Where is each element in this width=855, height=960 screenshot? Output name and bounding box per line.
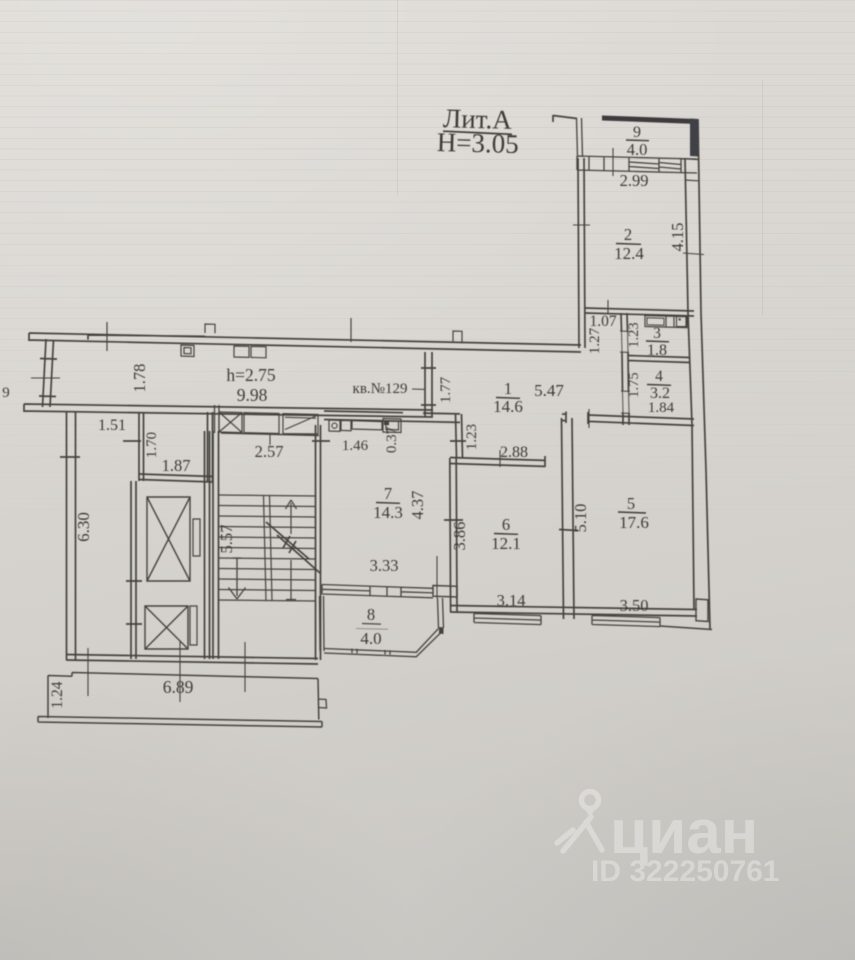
svg-text:2.99: 2.99 [620, 171, 649, 190]
svg-text:8: 8 [367, 605, 375, 624]
svg-text:4.0: 4.0 [627, 140, 648, 159]
svg-text:1.75: 1.75 [626, 372, 642, 397]
svg-text:4.0: 4.0 [360, 629, 381, 648]
svg-text:1.23: 1.23 [464, 424, 480, 450]
svg-text:4: 4 [655, 368, 663, 385]
svg-text:2.57: 2.57 [255, 442, 284, 461]
svg-text:1.84: 1.84 [648, 400, 675, 416]
svg-text:4.37: 4.37 [408, 491, 427, 520]
svg-text:7: 7 [384, 484, 392, 503]
svg-text:1.78: 1.78 [130, 364, 149, 393]
svg-text:9.98: 9.98 [237, 385, 268, 405]
svg-text:3.33: 3.33 [370, 556, 399, 575]
svg-text:1.51: 1.51 [98, 417, 126, 434]
svg-text:1: 1 [504, 379, 512, 398]
svg-text:кв.№129: кв.№129 [353, 381, 408, 397]
svg-text:3: 3 [653, 325, 661, 342]
svg-text:1.70: 1.70 [144, 432, 160, 458]
svg-text:ID 322250761: ID 322250761 [591, 855, 780, 888]
svg-text:4.15: 4.15 [668, 223, 687, 252]
svg-text:1.87: 1.87 [162, 456, 191, 475]
svg-text:9: 9 [633, 124, 641, 141]
svg-text:6.89: 6.89 [163, 677, 194, 697]
svg-text:14.6: 14.6 [493, 397, 523, 416]
svg-text:5: 5 [627, 494, 635, 513]
svg-text:6: 6 [502, 515, 510, 534]
svg-text:1.77: 1.77 [438, 376, 454, 403]
svg-text:1.23: 1.23 [626, 322, 642, 347]
svg-text:5.47: 5.47 [534, 381, 564, 400]
svg-text:1.27: 1.27 [587, 327, 603, 354]
svg-text:1.24: 1.24 [49, 681, 66, 708]
svg-text:1.46: 1.46 [342, 438, 369, 454]
svg-text:1.07: 1.07 [589, 313, 616, 330]
svg-text:0.37: 0.37 [384, 426, 400, 453]
svg-text:17.6: 17.6 [619, 513, 649, 532]
svg-text:5.10: 5.10 [571, 504, 590, 533]
svg-text:12.1: 12.1 [491, 534, 521, 553]
svg-text:5.57: 5.57 [217, 525, 236, 554]
svg-text:3.14: 3.14 [497, 591, 526, 610]
svg-text:9: 9 [2, 385, 10, 401]
svg-text:6.30: 6.30 [74, 512, 93, 542]
svg-text:2: 2 [624, 225, 632, 244]
svg-text:1.8: 1.8 [647, 342, 667, 359]
svg-text:3.50: 3.50 [620, 596, 649, 615]
svg-text:h=2.75: h=2.75 [226, 365, 275, 385]
svg-text:3.86: 3.86 [450, 522, 469, 551]
svg-text:2.88: 2.88 [500, 444, 528, 461]
svg-text:12.4: 12.4 [614, 244, 644, 263]
svg-text:14.3: 14.3 [373, 503, 403, 522]
